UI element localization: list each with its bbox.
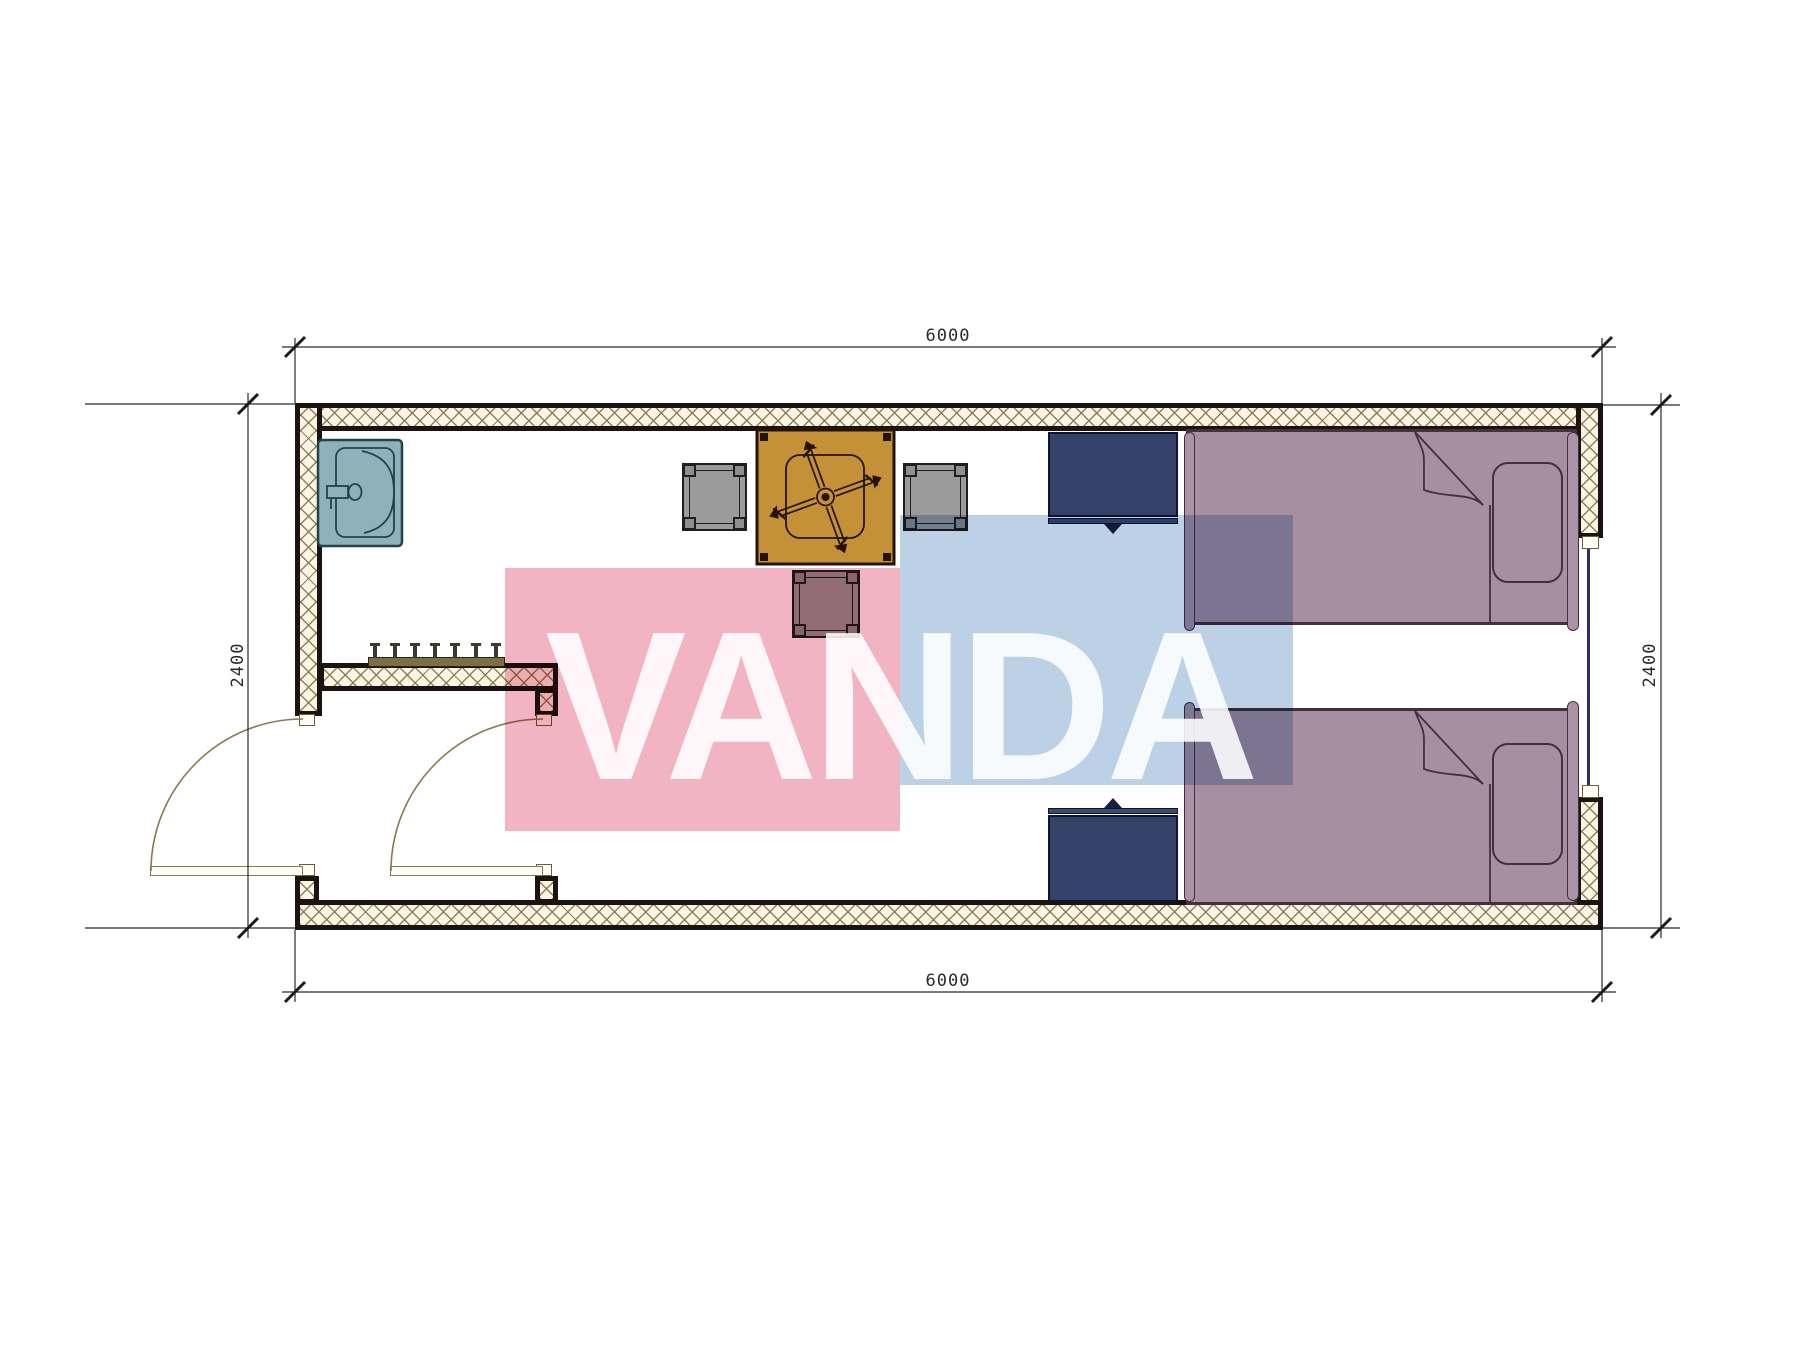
bed-blanket-lines: [1415, 432, 1490, 902]
dimension-label-bottom: 6000: [898, 971, 998, 991]
dimension-label-top: 6000: [898, 326, 998, 346]
floor-plan-canvas: 6000 6000 2400 2400 VANDA: [0, 0, 1800, 1350]
table-icon: [751, 423, 900, 572]
watermark-text: VANDA: [545, 600, 1253, 812]
door-swing-arcs: [151, 719, 543, 871]
dimension-label-right: 2400: [1640, 615, 1660, 715]
sink-icon: [318, 440, 402, 546]
dimension-label-left: 2400: [228, 615, 248, 715]
